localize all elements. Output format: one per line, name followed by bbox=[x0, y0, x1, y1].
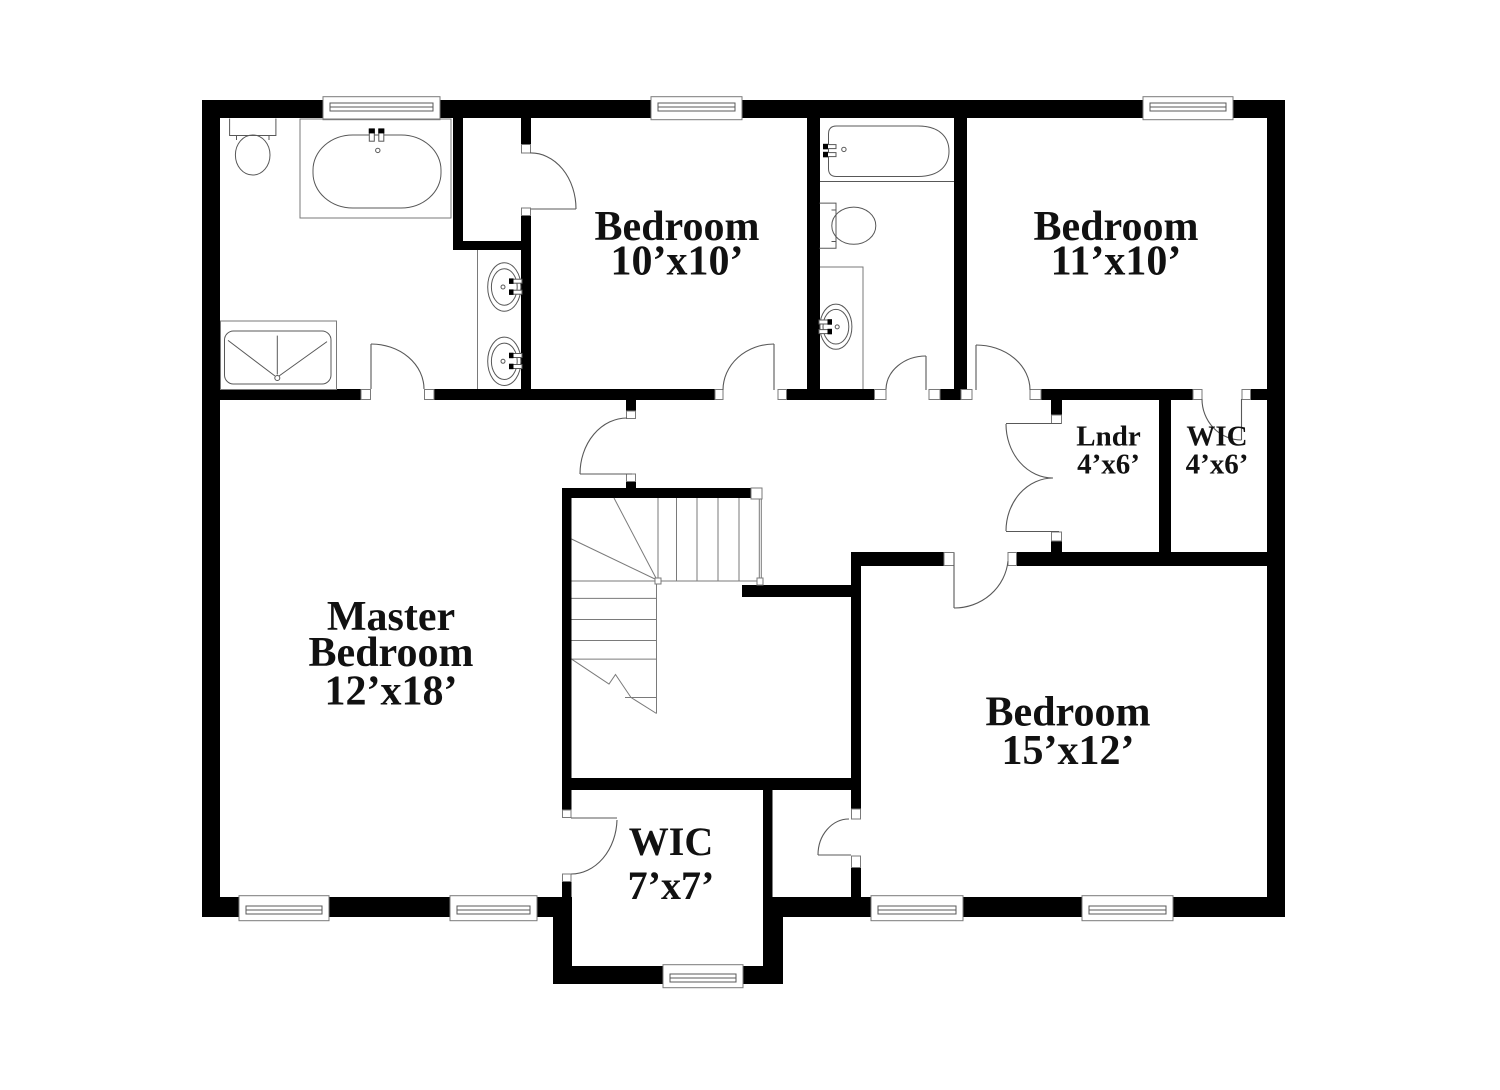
svg-text:4’x6’: 4’x6’ bbox=[1186, 449, 1249, 481]
svg-text:10’x10’: 10’x10’ bbox=[611, 239, 744, 285]
svg-text:WIC: WIC bbox=[629, 819, 713, 864]
svg-text:4’x6’: 4’x6’ bbox=[1077, 449, 1140, 481]
svg-text:12’x18’: 12’x18’ bbox=[325, 669, 458, 715]
svg-text:7’x7’: 7’x7’ bbox=[628, 863, 715, 908]
svg-text:11’x10’: 11’x10’ bbox=[1051, 239, 1182, 285]
svg-text:15’x12’: 15’x12’ bbox=[1002, 728, 1135, 774]
